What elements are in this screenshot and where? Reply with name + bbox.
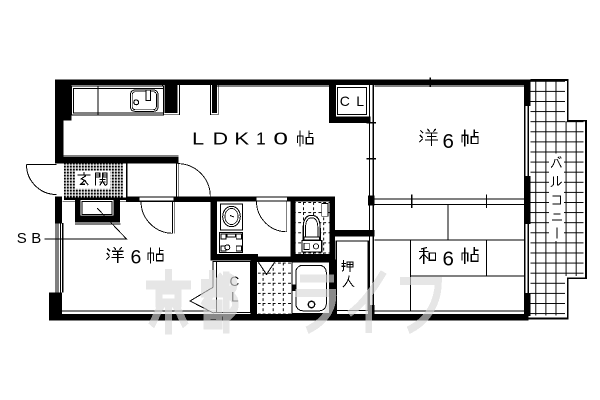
svg-text:1: 1 [256, 129, 266, 149]
svg-text:6: 6 [131, 246, 142, 268]
svg-text:SB: SB [17, 230, 46, 247]
svg-text:6: 6 [443, 130, 454, 153]
svg-text:0: 0 [273, 129, 288, 149]
svg-text:K: K [234, 130, 250, 149]
svg-text:CL: CL [340, 93, 371, 109]
svg-text:D: D [213, 129, 228, 149]
svg-text:L: L [192, 130, 204, 149]
svg-text:6: 6 [443, 248, 454, 271]
